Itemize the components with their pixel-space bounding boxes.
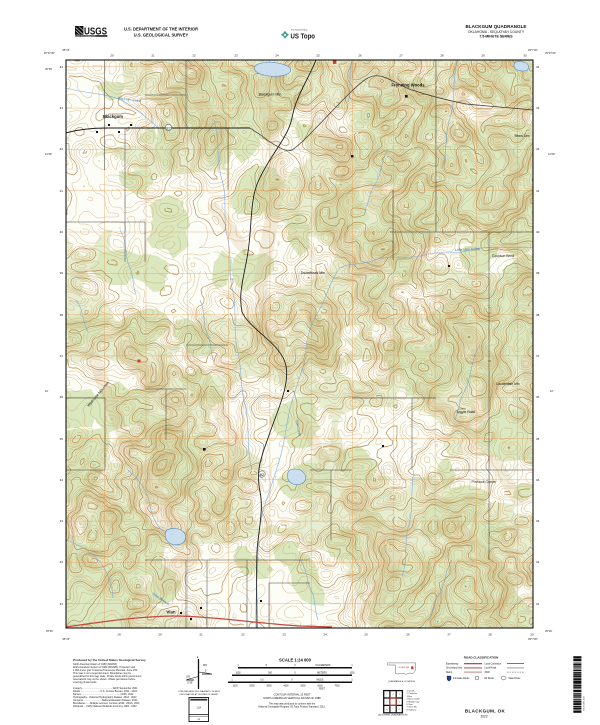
svg-text:Wetlands.....FWS National Wetl: Wetlands.....FWS National Wetlands Inven… — [73, 705, 137, 708]
svg-text:Local Road: Local Road — [485, 668, 497, 670]
svg-text:8 Sallisaw: 8 Sallisaw — [407, 709, 417, 711]
svg-text:National Geospatial Program US: National Geospatial Program US Topo Prod… — [259, 706, 326, 709]
svg-text:33: 33 — [536, 519, 540, 523]
svg-text:GN: GN — [186, 676, 190, 679]
svg-text:35: 35 — [60, 437, 64, 441]
svg-text:23: 23 — [282, 633, 286, 637]
svg-text:7000: 7000 — [334, 686, 340, 688]
svg-text:26: 26 — [358, 54, 362, 58]
svg-text:Lauderdale Mtn: Lauderdale Mtn — [496, 382, 520, 386]
svg-text:44: 44 — [60, 65, 64, 69]
svg-text:36: 36 — [60, 395, 64, 399]
svg-text:95°15': 95°15' — [62, 48, 70, 52]
svg-text:2 Cookson: 2 Cookson — [407, 693, 418, 695]
svg-text:10': 10' — [550, 389, 554, 393]
svg-text:Expressway: Expressway — [446, 663, 459, 666]
svg-text:37: 37 — [60, 354, 64, 358]
svg-text:5000: 5000 — [300, 686, 306, 688]
svg-text:35°30': 35°30' — [545, 629, 553, 633]
svg-text:Secondary Hwy: Secondary Hwy — [446, 667, 463, 670]
svg-text:40: 40 — [536, 230, 540, 234]
svg-text:FEET: FEET — [319, 689, 325, 691]
svg-text:32: 32 — [60, 560, 64, 564]
svg-text:1 Qualls: 1 Qualls — [407, 691, 416, 693]
svg-text:Dozerhead Mtn: Dozerhead Mtn — [301, 271, 326, 275]
svg-text:12'30": 12'30" — [548, 152, 555, 156]
svg-text:39: 39 — [60, 271, 64, 275]
svg-text:UTM GRID AND 2022 MAGNETIC NOR: UTM GRID AND 2022 MAGNETIC NORTH — [178, 690, 220, 693]
svg-text:1000: 1000 — [235, 673, 241, 675]
svg-text:NORTH AMERICAN VERTICAL DATUM: NORTH AMERICAN VERTICAL DATUM OF 1988 — [263, 696, 321, 700]
svg-text:6000: 6000 — [317, 686, 323, 688]
svg-text:39: 39 — [536, 271, 540, 275]
svg-text:Cookson Bend: Cookson Bend — [492, 254, 514, 258]
svg-text:SCALE 1:24 000: SCALE 1:24 000 — [279, 658, 312, 663]
svg-text:32: 32 — [536, 560, 540, 564]
svg-text:Pinhook Corner: Pinhook Corner — [472, 480, 498, 484]
svg-text:30: 30 — [523, 54, 527, 58]
svg-text:3000: 3000 — [266, 686, 272, 688]
svg-text:1000: 1000 — [349, 673, 355, 675]
svg-text:27: 27 — [447, 633, 451, 637]
svg-text:BLACKGUM QUADRANGLE: BLACKGUM QUADRANGLE — [466, 24, 527, 29]
svg-text:42: 42 — [60, 147, 64, 151]
svg-text:BLACKGUM, OK: BLACKGUM, OK — [465, 708, 506, 713]
svg-text:Argyle Road: Argyle Road — [457, 410, 476, 414]
svg-text:0°29': 0°29' — [187, 682, 193, 685]
svg-text:US Topo: US Topo — [291, 32, 316, 41]
svg-text:Produced by the United States: Produced by the United States Geological… — [73, 658, 146, 662]
svg-text:35°37'30": 35°37'30" — [545, 51, 556, 55]
svg-text:42: 42 — [536, 147, 540, 151]
svg-text:38: 38 — [536, 313, 540, 317]
svg-text:DECLINATION AT CENTER OF SHEET: DECLINATION AT CENTER OF SHEET — [180, 693, 219, 696]
svg-text:34: 34 — [60, 478, 64, 482]
svg-text:22: 22 — [241, 633, 245, 637]
svg-text:2022: 2022 — [480, 714, 487, 718]
svg-text:7.5-MINUTE SERIES: 7.5-MINUTE SERIES — [479, 34, 513, 38]
svg-text:OKLAHOMA - SEQUOYAH COUNTY: OKLAHOMA - SEQUOYAH COUNTY — [468, 30, 525, 34]
svg-text:43: 43 — [536, 106, 540, 110]
svg-text:37: 37 — [536, 354, 540, 358]
svg-text:2000: 2000 — [249, 686, 255, 688]
svg-text:entering private lands.: entering private lands. — [73, 681, 97, 684]
svg-text:38: 38 — [60, 313, 64, 317]
svg-text:State Route: State Route — [508, 677, 521, 680]
svg-text:QUADRANGLE LOCATION: QUADRANGLE LOCATION — [388, 680, 415, 683]
svg-text:21: 21 — [151, 54, 155, 58]
svg-text:29: 29 — [530, 633, 534, 637]
svg-text:44: 44 — [536, 65, 540, 69]
svg-text:34: 34 — [536, 478, 540, 482]
svg-text:20: 20 — [110, 54, 114, 58]
svg-text:1000: 1000 — [232, 686, 238, 688]
svg-text:23: 23 — [234, 54, 238, 58]
svg-text:U.S. DEPARTMENT OF THE INTERIO: U.S. DEPARTMENT OF THE INTERIOR — [124, 27, 198, 32]
svg-text:MILES: MILES — [317, 680, 324, 682]
svg-text:U.S. GEOLOGICAL SURVEY: U.S. GEOLOGICAL SURVEY — [134, 33, 189, 38]
svg-text:35°35': 35°35' — [45, 67, 53, 71]
svg-text:ADJOINING QUADRANGLES: ADJOINING QUADRANGLES — [378, 714, 408, 717]
svg-text:MN: MN — [203, 664, 207, 667]
svg-text:82: 82 — [260, 472, 265, 477]
svg-text:Blackgum: Blackgum — [103, 114, 123, 119]
svg-text:24: 24 — [323, 633, 327, 637]
svg-text:43: 43 — [60, 106, 64, 110]
svg-text:31: 31 — [536, 602, 540, 606]
svg-text:Vian: Vian — [166, 610, 176, 615]
svg-text:20: 20 — [158, 633, 162, 637]
svg-text:27: 27 — [399, 54, 403, 58]
svg-text:METERS: METERS — [317, 673, 327, 675]
svg-text:USGS 24K 2022: USGS 24K 2022 — [584, 695, 586, 711]
svg-text:6 Vian: 6 Vian — [407, 704, 414, 706]
svg-text:science for a changing world: science for a changing world — [75, 36, 95, 38]
svg-text:Interstate Route: Interstate Route — [453, 677, 470, 680]
svg-text:4 Burnt Cabin: 4 Burnt Cabin — [407, 698, 421, 701]
svg-text:40: 40 — [60, 230, 64, 234]
svg-text:19: 19 — [117, 633, 121, 637]
svg-text:1:24: 1:24 — [196, 708, 201, 710]
svg-text:29: 29 — [481, 54, 485, 58]
svg-text:82: 82 — [166, 125, 171, 130]
svg-text:5 Marble City: 5 Marble City — [407, 700, 421, 703]
svg-text:24: 24 — [275, 54, 279, 58]
svg-text:★: ★ — [196, 656, 198, 659]
svg-text:25: 25 — [316, 54, 320, 58]
svg-text:US Route: US Route — [484, 677, 495, 680]
svg-text:95°7'30": 95°7'30" — [528, 48, 538, 52]
svg-text:28: 28 — [440, 54, 444, 58]
svg-text:35°37'30": 35°37'30" — [44, 51, 55, 55]
svg-text:95°15': 95°15' — [62, 637, 70, 641]
svg-text:12'30": 12'30" — [45, 152, 52, 156]
svg-text:28: 28 — [488, 633, 492, 637]
svg-text:41: 41 — [536, 189, 540, 193]
svg-text:Local Connector: Local Connector — [485, 663, 502, 666]
svg-text:OKLAHOMA: OKLAHOMA — [398, 666, 409, 669]
svg-text:Bears Den: Bears Den — [514, 134, 529, 138]
svg-text:Blackgum Mtn: Blackgum Mtn — [259, 93, 282, 97]
svg-text:41: 41 — [60, 189, 64, 193]
svg-text:31: 31 — [60, 602, 64, 606]
svg-text:22: 22 — [192, 54, 196, 58]
svg-text:Fronning Woods: Fronning Woods — [391, 83, 425, 88]
svg-text:35: 35 — [536, 437, 540, 441]
svg-text:33: 33 — [60, 519, 64, 523]
svg-text:26: 26 — [406, 633, 410, 637]
svg-text:KILOMETERS: KILOMETERS — [316, 665, 331, 667]
svg-text:35°30': 35°30' — [46, 629, 54, 633]
svg-text:25: 25 — [364, 633, 368, 637]
svg-text:95°7'30": 95°7'30" — [528, 637, 538, 641]
svg-text:4000: 4000 — [283, 686, 289, 688]
svg-text:2°: 2° — [205, 670, 207, 673]
svg-text:10': 10' — [45, 389, 49, 393]
svg-text:Ramp: Ramp — [446, 672, 453, 674]
svg-text:3 Box: 3 Box — [407, 696, 413, 698]
svg-text:ROAD CLASSIFICATION: ROAD CLASSIFICATION — [464, 656, 499, 660]
svg-text:4WD: 4WD — [485, 672, 490, 674]
svg-text:21: 21 — [199, 633, 203, 637]
svg-text:36: 36 — [536, 395, 540, 399]
svg-text:7 Gore SE: 7 Gore SE — [407, 706, 418, 709]
